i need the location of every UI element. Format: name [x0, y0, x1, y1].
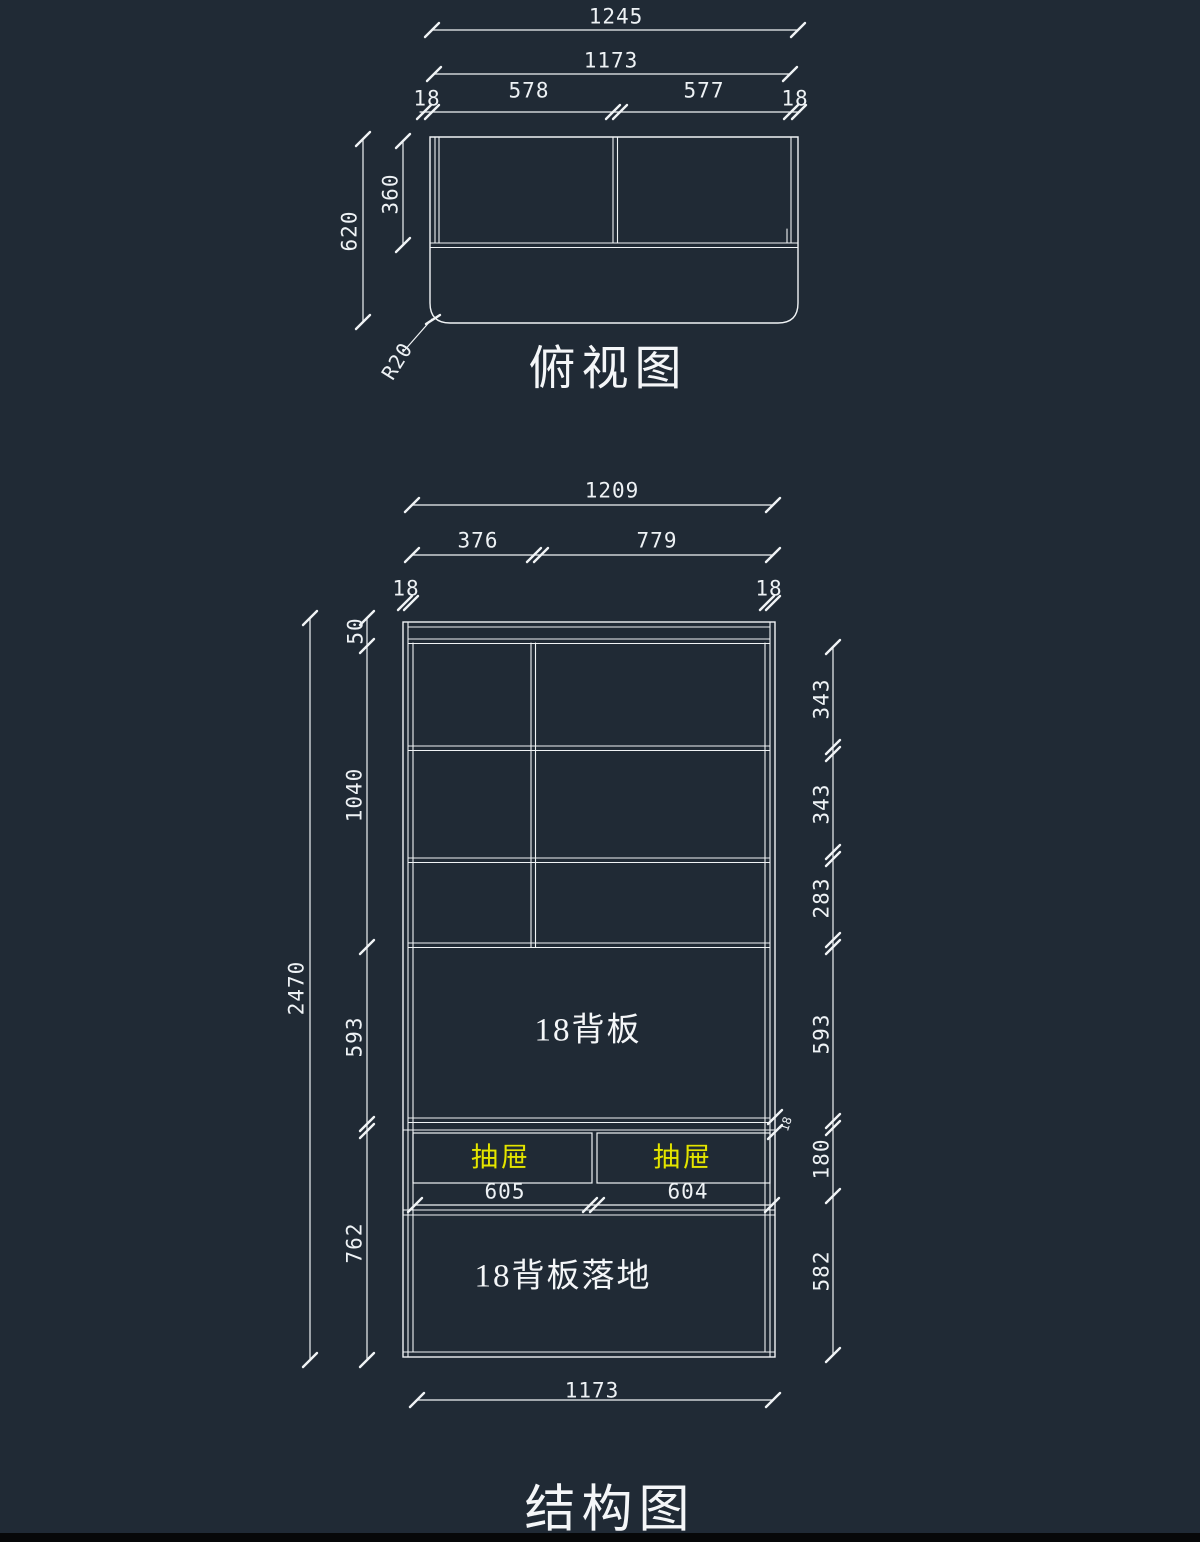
dim-structure-base-left: 762 — [345, 1223, 366, 1264]
dim-structure-col-left: 376 — [458, 531, 499, 552]
dim-topview-depth-total: 620 — [340, 211, 361, 252]
dim-topview-depth-back: 360 — [381, 174, 402, 215]
dim-structure-col-right: 779 — [637, 531, 678, 552]
dim-topview-side-left: 18 — [413, 89, 440, 110]
dim-structure-grid-height: 1040 — [345, 768, 366, 823]
dim-structure-side-right: 18 — [755, 579, 782, 600]
drawing-linework — [0, 0, 1200, 1542]
dim-structure-backpanel-right: 593 — [812, 1014, 833, 1055]
top-view-body — [430, 137, 798, 323]
back-panel-label: 18背板 — [535, 1015, 642, 1048]
structure-cabinet-body — [403, 622, 775, 1357]
dim-topview-cell-right: 577 — [684, 81, 725, 102]
dim-structure-row2: 343 — [812, 784, 833, 825]
dim-structure-top-strip: 50 — [346, 617, 367, 644]
top-view-title: 俯视图 — [529, 347, 688, 394]
dim-structure-side-left: 18 — [392, 579, 419, 600]
dim-structure-base-right: 582 — [812, 1251, 833, 1292]
drawer-right-label: 抽屉 — [653, 1145, 713, 1172]
dim-drawer-width-right: 604 — [668, 1182, 709, 1203]
structure-title: 结构图 — [524, 1486, 695, 1537]
dim-structure-total-width: 1209 — [585, 481, 640, 502]
cad-canvas: 1245 1173 18 578 577 18 620 360 R20 俯视图 … — [0, 0, 1200, 1542]
bottom-edge-strip — [0, 1533, 1200, 1542]
dim-structure-drawer-height: 180 — [812, 1139, 833, 1180]
dim-structure-row3: 283 — [812, 878, 833, 919]
drawer-left-label: 抽屉 — [471, 1145, 531, 1172]
dim-topview-side-right: 18 — [781, 89, 808, 110]
base-panel-label: 18背板落地 — [475, 1261, 652, 1294]
dim-structure-row1: 343 — [812, 679, 833, 720]
dim-topview-inner-width: 1173 — [584, 51, 639, 72]
dim-topview-total-width: 1245 — [589, 7, 644, 28]
dim-drawer-width-left: 605 — [485, 1182, 526, 1203]
top-view-dimension-lines — [356, 23, 806, 352]
dim-structure-backpanel-left: 593 — [345, 1017, 366, 1058]
dim-structure-bottom-width: 1173 — [565, 1381, 620, 1402]
dim-structure-total-height: 2470 — [287, 961, 308, 1016]
dim-topview-cell-left: 578 — [509, 81, 550, 102]
